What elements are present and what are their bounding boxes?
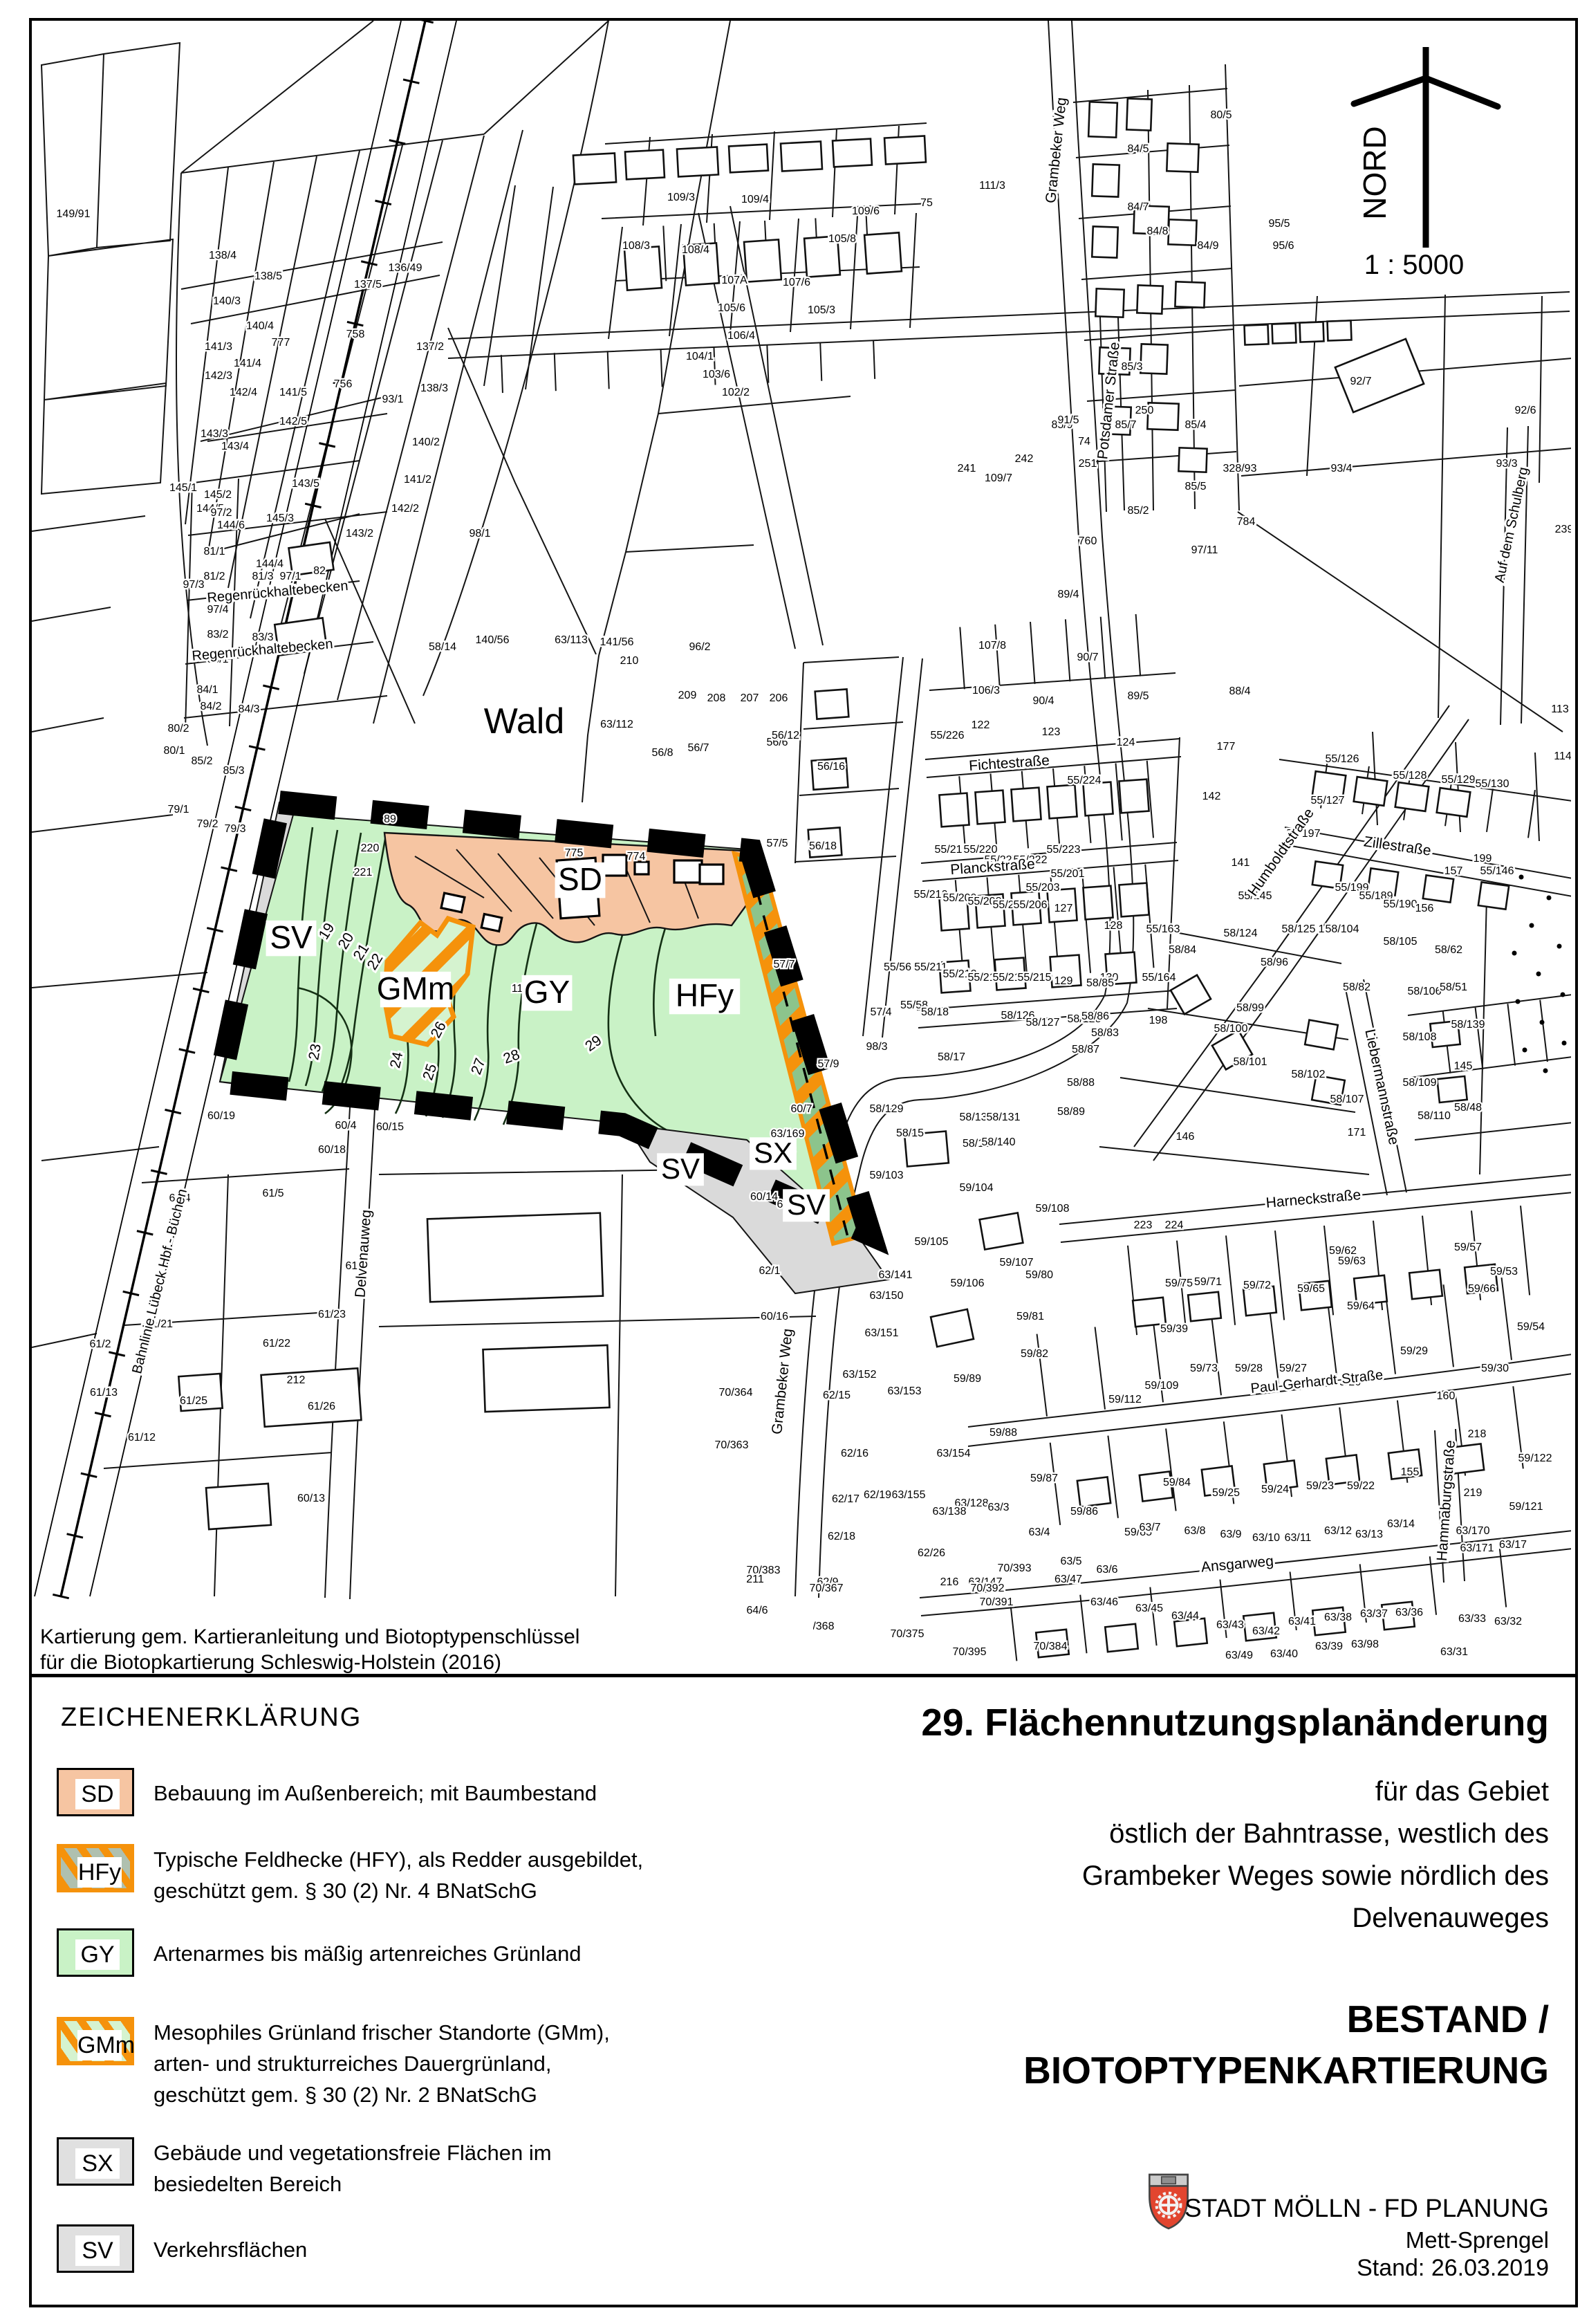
- parcel-label: 84/2: [200, 701, 221, 712]
- parcel-label: 55/128: [1393, 770, 1427, 782]
- svg-text:59/23: 59/23: [1306, 1480, 1334, 1492]
- parcel-label: 84/1: [196, 684, 218, 696]
- parcel-label: 58/15: [896, 1127, 924, 1139]
- svg-text:92/7: 92/7: [1350, 376, 1371, 387]
- parcel-label: 63/9: [1220, 1529, 1241, 1540]
- parcel-label: 95/5: [1268, 218, 1290, 230]
- parcel-label: 250: [1135, 405, 1154, 416]
- svg-text:224: 224: [1165, 1219, 1184, 1231]
- svg-text:Grambeker Weg: Grambeker Weg: [769, 1328, 796, 1435]
- parcel-label: 138/3: [420, 382, 448, 394]
- parcel-label: 122: [972, 719, 990, 731]
- svg-text:84/8: 84/8: [1146, 225, 1168, 237]
- svg-text:59/80: 59/80: [1025, 1269, 1053, 1281]
- parcel-label: 61/13: [90, 1387, 118, 1399]
- parcel-label: 62/16: [841, 1448, 868, 1459]
- svg-text:58/87: 58/87: [1072, 1044, 1099, 1055]
- parcel-label: 108/4: [682, 244, 709, 256]
- parcel-label: 105/6: [718, 302, 745, 314]
- biotope-code-label: SV: [266, 919, 317, 956]
- parcel-label: 123: [1042, 726, 1061, 738]
- legend-code: SV: [75, 2235, 120, 2266]
- map-note: Kartierung gem. Kartieranleitung und Bio…: [35, 1620, 813, 1682]
- svg-text:97/3: 97/3: [183, 579, 204, 591]
- parcel-label: 140/3: [213, 295, 241, 307]
- svg-text:58/127: 58/127: [1026, 1017, 1060, 1029]
- parcel-label: 58/48: [1454, 1102, 1482, 1114]
- parcel-label: 63/49: [1225, 1650, 1253, 1661]
- svg-text:63/141: 63/141: [879, 1269, 913, 1281]
- svg-text:HFy: HFy: [676, 977, 734, 1013]
- parcel-label: 58/110: [1418, 1110, 1451, 1122]
- svg-text:140/56: 140/56: [476, 634, 510, 646]
- svg-text:SX: SX: [754, 1136, 792, 1169]
- parcel-label: 63/138: [933, 1506, 967, 1518]
- svg-text:241: 241: [958, 463, 976, 474]
- parcel-label: 58/109: [1403, 1077, 1437, 1089]
- parcel-label: 63/43: [1216, 1619, 1244, 1631]
- svg-text:58/14: 58/14: [429, 641, 456, 653]
- plan-subtitle-line: Grambeker Weges sowie nördlich des: [788, 1855, 1549, 1897]
- svg-text:199: 199: [1474, 853, 1492, 865]
- legend-description: Gebäude und vegetationsfreie Flächen imb…: [154, 2137, 552, 2199]
- parcel-label: 85/3: [223, 765, 244, 777]
- svg-text:59/71: 59/71: [1194, 1276, 1222, 1288]
- parcel-label: 55/224: [1068, 775, 1102, 786]
- parcel-label: 98/3: [866, 1041, 887, 1053]
- parcel-label: 55/146: [1480, 865, 1514, 877]
- street-label: Fichtestraße: [969, 753, 1050, 774]
- svg-text:216: 216: [940, 1576, 959, 1588]
- svg-text:63/154: 63/154: [937, 1448, 971, 1459]
- svg-text:242: 242: [1015, 453, 1034, 465]
- parcel-label: 89/5: [1127, 690, 1149, 702]
- svg-text:211: 211: [746, 1574, 764, 1585]
- svg-text:60/7: 60/7: [790, 1103, 812, 1115]
- parcel-label: 760: [1079, 535, 1097, 547]
- parcel-label: 91/5: [1057, 414, 1079, 426]
- parcel-label: 141/56: [600, 636, 634, 648]
- svg-text:59/65: 59/65: [1297, 1283, 1325, 1295]
- moelln-coat-of-arms-icon: [1148, 2173, 1189, 2230]
- svg-text:70/367: 70/367: [810, 1583, 844, 1594]
- svg-text:209: 209: [678, 690, 697, 701]
- svg-text:59/108: 59/108: [1036, 1203, 1070, 1215]
- parcel-label: 60/7: [790, 1103, 812, 1115]
- svg-text:58/101: 58/101: [1234, 1056, 1267, 1068]
- svg-text:63/98: 63/98: [1351, 1639, 1379, 1650]
- svg-text:97/2: 97/2: [210, 507, 232, 519]
- svg-text:90/7: 90/7: [1077, 652, 1098, 663]
- svg-text:55/127: 55/127: [1311, 795, 1345, 806]
- parcel-label: 63/5: [1060, 1556, 1081, 1567]
- svg-text:63/171: 63/171: [1460, 1542, 1494, 1554]
- svg-text:221: 221: [354, 867, 373, 878]
- biotope-code-label: SV: [657, 1152, 704, 1186]
- svg-text:95/5: 95/5: [1268, 218, 1290, 230]
- legend-description: Bebauung im Außenbereich; mit Baumbestan…: [154, 1778, 597, 1809]
- parcel-label: 138/4: [209, 250, 236, 261]
- parcel-label: 63/33: [1458, 1613, 1486, 1625]
- parcel-label: 63/152: [843, 1369, 877, 1381]
- svg-text:63/9: 63/9: [1220, 1529, 1241, 1540]
- parcel-label: 63/39: [1315, 1641, 1343, 1652]
- svg-text:63/113: 63/113: [555, 634, 588, 646]
- street-label: Delvenauweg: [353, 1209, 375, 1298]
- street-label: Harneckstraße: [1265, 1187, 1362, 1211]
- parcel-label: 63/150: [870, 1290, 904, 1302]
- svg-text:58/86: 58/86: [1081, 1011, 1109, 1022]
- svg-text:59/112: 59/112: [1108, 1394, 1142, 1405]
- svg-text:59/53: 59/53: [1490, 1266, 1518, 1278]
- parcel-label: 59/23: [1306, 1480, 1334, 1492]
- parcel-label: 58/17: [938, 1051, 965, 1063]
- svg-text:81/1: 81/1: [203, 546, 225, 557]
- svg-text:144/6: 144/6: [217, 519, 245, 531]
- svg-text:61/5: 61/5: [262, 1188, 284, 1199]
- parcel-label: 63/13: [1355, 1529, 1383, 1540]
- svg-text:141/56: 141/56: [600, 636, 634, 648]
- svg-text:Regenrückhaltebecken: Regenrückhaltebecken: [207, 578, 349, 606]
- parcel-label: 59/65: [1297, 1283, 1325, 1295]
- parcel-label: 61/2: [89, 1338, 111, 1350]
- parcel-label: 63/3: [987, 1502, 1009, 1513]
- svg-text:62/17: 62/17: [832, 1493, 859, 1505]
- parcel-label: 62/26: [918, 1547, 945, 1559]
- svg-text:208: 208: [707, 692, 726, 704]
- parcel-label: 63/40: [1270, 1648, 1298, 1660]
- parcel-label: 160: [1437, 1390, 1456, 1402]
- svg-text:142/4: 142/4: [230, 387, 257, 398]
- parcel-label: 89/4: [1057, 589, 1079, 600]
- street-label: Grambeker Weg: [1043, 97, 1070, 204]
- svg-text:61/26: 61/26: [308, 1401, 335, 1412]
- svg-text:141/2: 141/2: [404, 474, 431, 486]
- svg-text:58/85: 58/85: [1086, 977, 1114, 989]
- svg-text:92/6: 92/6: [1514, 405, 1536, 416]
- svg-text:146: 146: [1176, 1131, 1195, 1143]
- svg-text:63/138: 63/138: [933, 1506, 967, 1518]
- svg-text:143/5: 143/5: [292, 478, 319, 490]
- legend-code: SD: [75, 1779, 120, 1809]
- parcel-label: 64/6: [746, 1605, 768, 1616]
- parcel-label: 784: [1237, 516, 1256, 528]
- parcel-label: 79/1: [167, 804, 189, 815]
- svg-text:59/81: 59/81: [1016, 1311, 1044, 1322]
- svg-text:59/103: 59/103: [870, 1170, 904, 1181]
- parcel-label: 61/22: [263, 1338, 290, 1349]
- parcel-label: 58/131: [987, 1112, 1021, 1123]
- parcel-label: 61/12: [128, 1432, 156, 1444]
- svg-text:218: 218: [1468, 1428, 1487, 1440]
- parcel-label: 114: [1554, 750, 1571, 762]
- parcel-label: 85/2: [1127, 505, 1149, 517]
- plan-subtitle: für das Gebietöstlich der Bahntrasse, we…: [788, 1771, 1549, 1939]
- parcel-label: 96/2: [689, 641, 710, 653]
- svg-text:55/190: 55/190: [1384, 898, 1418, 910]
- svg-text:62/16: 62/16: [841, 1448, 868, 1459]
- parcel-label: 59/105: [915, 1236, 949, 1248]
- biotope-code-label: SX: [750, 1136, 797, 1170]
- svg-text:85/2: 85/2: [1127, 505, 1149, 517]
- plan-sheet: NORD 1 : 5000 138/4138/5137/5136/49140/3…: [0, 0, 1589, 2324]
- parcel-label: 58/101: [1234, 1056, 1267, 1068]
- map-note-line: für die Biotopkartierung Schleswig-Holst…: [40, 1650, 808, 1675]
- svg-text:55/224: 55/224: [1068, 775, 1102, 786]
- parcel-label: 84/5: [1127, 143, 1149, 155]
- parcel-label: 63/47: [1054, 1574, 1082, 1585]
- parcel-label: 61/25: [180, 1395, 207, 1407]
- parcel-label: 70/384: [1034, 1641, 1068, 1652]
- svg-text:58/125: 58/125: [1282, 923, 1316, 935]
- parcel-label: 128: [1104, 920, 1123, 932]
- svg-text:98/3: 98/3: [866, 1041, 887, 1053]
- parcel-label: 60/15: [376, 1121, 404, 1133]
- svg-text:70/391: 70/391: [980, 1596, 1014, 1608]
- parcel-label: 63/153: [888, 1385, 922, 1397]
- parcel-label: 111/3: [979, 180, 1005, 192]
- svg-text:137/5: 137/5: [354, 279, 382, 290]
- svg-text:58/15: 58/15: [896, 1127, 924, 1139]
- svg-text:59/88: 59/88: [989, 1427, 1017, 1439]
- svg-text:Delvenauweg: Delvenauweg: [353, 1209, 375, 1298]
- parcel-label: 145/3: [266, 513, 294, 524]
- parcel-label: 55/129: [1442, 774, 1476, 786]
- svg-text:59/63: 59/63: [1338, 1255, 1366, 1267]
- svg-text:63/36: 63/36: [1395, 1607, 1423, 1618]
- svg-text:55/164: 55/164: [1142, 972, 1176, 984]
- parcel-label: 61/23: [318, 1309, 346, 1320]
- svg-text:75: 75: [920, 197, 933, 209]
- parcel-label: 239: [1555, 524, 1571, 535]
- plan-subject: BESTAND /BIOTOPTYPENKARTIERUNG: [719, 1993, 1549, 2096]
- parcel-label: 58/108: [1403, 1031, 1437, 1043]
- parcel-label: 97/3: [183, 579, 204, 591]
- parcel-label: 63/151: [865, 1327, 899, 1339]
- svg-text:79/3: 79/3: [224, 823, 245, 835]
- parcel-label: 58/106: [1408, 986, 1442, 997]
- svg-text:59/29: 59/29: [1400, 1345, 1428, 1357]
- svg-text:138/3: 138/3: [420, 382, 448, 394]
- svg-text:85/4: 85/4: [1184, 419, 1206, 431]
- parcel-label: 55/215: [1018, 972, 1052, 984]
- parcel-label: 211: [746, 1574, 764, 1585]
- parcel-label: 59/89: [954, 1373, 981, 1385]
- parcel-label: 146: [1176, 1131, 1195, 1143]
- parcel-label: 62/1: [759, 1265, 780, 1277]
- parcel-label: 63/113: [555, 634, 588, 646]
- parcel-label: 74: [1078, 436, 1090, 448]
- legend-code: SX: [75, 2148, 120, 2179]
- parcel-label: 775: [565, 847, 584, 859]
- svg-text:57/9: 57/9: [817, 1058, 839, 1070]
- parcel-label: 142/4: [230, 387, 257, 398]
- svg-text:80/2: 80/2: [167, 723, 189, 735]
- svg-text:59/72: 59/72: [1243, 1280, 1271, 1291]
- svg-text:70/363: 70/363: [715, 1439, 749, 1451]
- parcel-label: 109/7: [985, 472, 1012, 484]
- svg-text:109/4: 109/4: [741, 194, 769, 205]
- svg-text:56/18: 56/18: [809, 840, 837, 852]
- svg-text:80/1: 80/1: [163, 745, 185, 757]
- svg-text:55/201: 55/201: [1051, 868, 1085, 880]
- parcel-label: 328/93: [1223, 463, 1257, 474]
- svg-text:160: 160: [1437, 1390, 1456, 1402]
- parcel-label: 60/13: [297, 1493, 325, 1504]
- svg-text:63/12: 63/12: [1324, 1525, 1352, 1537]
- svg-text:Harneckstraße: Harneckstraße: [1265, 1187, 1362, 1211]
- legend-swatch-gmm-icon: GMm: [57, 2017, 134, 2065]
- parcel-label: 70/393: [998, 1562, 1032, 1574]
- svg-text:58/99: 58/99: [1236, 1002, 1264, 1014]
- parcel-label: 58/125: [1282, 923, 1316, 935]
- parcel-label: 58/88: [1067, 1077, 1095, 1089]
- svg-text:60/18: 60/18: [318, 1144, 346, 1156]
- street-label: Bahnlinie Lübeck Hbf - Büchen: [129, 1188, 190, 1376]
- parcel-label: 55/201: [1051, 868, 1085, 880]
- svg-text:63/17: 63/17: [1499, 1539, 1527, 1551]
- parcel-label: 59/25: [1212, 1487, 1240, 1499]
- svg-text:63/5: 63/5: [1060, 1556, 1081, 1567]
- svg-text:157: 157: [1444, 865, 1463, 877]
- svg-text:58/96: 58/96: [1261, 957, 1288, 968]
- parcel-label: 104/1: [686, 351, 714, 362]
- svg-text:58/102: 58/102: [1292, 1069, 1326, 1080]
- parcel-label: 88/4: [1229, 685, 1250, 697]
- svg-text:141/5: 141/5: [279, 387, 307, 398]
- parcel-label: 62/17: [832, 1493, 859, 1505]
- parcel-label: 59/104: [960, 1182, 994, 1194]
- parcel-label: 84/7: [1127, 201, 1149, 213]
- parcel-label: 59/82: [1021, 1348, 1048, 1360]
- parcel-label: 138/5: [254, 270, 282, 282]
- parcel-label: 97/1: [279, 571, 301, 582]
- svg-text:58/88: 58/88: [1067, 1077, 1095, 1089]
- parcel-label: 220: [361, 842, 380, 854]
- parcel-label: 59/29: [1400, 1345, 1428, 1357]
- svg-text:59/89: 59/89: [954, 1373, 981, 1385]
- parcel-label: 143/2: [346, 528, 373, 539]
- svg-text:59/27: 59/27: [1279, 1363, 1307, 1374]
- svg-text:63/153: 63/153: [888, 1385, 922, 1397]
- svg-text:84/9: 84/9: [1197, 240, 1218, 252]
- svg-text:70/393: 70/393: [998, 1562, 1032, 1574]
- svg-text:58/109: 58/109: [1403, 1077, 1437, 1089]
- parcel-label: 59/121: [1509, 1501, 1543, 1513]
- north-arrow: NORD 1 : 5000: [1354, 47, 1498, 280]
- parcel-label: 60/14: [750, 1191, 778, 1203]
- svg-text:328/93: 328/93: [1223, 463, 1257, 474]
- parcel-label: 63/8: [1184, 1525, 1205, 1537]
- svg-text:58/139: 58/139: [1451, 1019, 1485, 1031]
- svg-text:250: 250: [1135, 405, 1154, 416]
- parcel-label: 63/7: [1139, 1522, 1160, 1533]
- svg-text:774: 774: [627, 851, 646, 863]
- biotope-code-label: SV: [783, 1188, 830, 1221]
- svg-text:57/5: 57/5: [766, 838, 788, 849]
- parcel-label: 58/99: [1236, 1002, 1264, 1014]
- parcel-label: 108/3: [622, 240, 650, 252]
- svg-text:63/32: 63/32: [1494, 1616, 1522, 1627]
- svg-text:143/3: 143/3: [201, 428, 228, 440]
- parcel-label: 58/86: [1081, 1011, 1109, 1022]
- svg-text:79/1: 79/1: [167, 804, 189, 815]
- svg-text:55/203: 55/203: [1026, 882, 1060, 894]
- parcel-label: 63/154: [937, 1448, 971, 1459]
- svg-text:23: 23: [306, 1042, 324, 1061]
- parcel-label: 57/4: [870, 1006, 891, 1018]
- parcel-label: 55/226: [931, 730, 965, 741]
- svg-text:122: 122: [972, 719, 990, 731]
- parcel-label: 70/364: [719, 1387, 753, 1399]
- legend-swatch-gy-icon: GY: [57, 1928, 134, 1977]
- parcel-label: 140/2: [412, 436, 440, 448]
- svg-text:97/1: 97/1: [279, 571, 301, 582]
- svg-text:775: 775: [565, 847, 584, 859]
- parcel-label: 63/6: [1096, 1564, 1117, 1576]
- svg-text:70/392: 70/392: [971, 1583, 1005, 1594]
- svg-text:Ansgarweg: Ansgarweg: [1200, 1553, 1274, 1575]
- street-label: Humboldtstraße: [1245, 805, 1317, 899]
- svg-text:58/18: 58/18: [921, 1006, 949, 1018]
- svg-text:85/2: 85/2: [191, 755, 212, 767]
- parcel-label: 57/5: [766, 838, 788, 849]
- parcel-label: 81/2: [203, 571, 225, 582]
- parcel-label: 59/84: [1163, 1477, 1191, 1488]
- svg-text:140/3: 140/3: [213, 295, 241, 307]
- parcel-label: 55/190: [1384, 898, 1418, 910]
- svg-text:58/17: 58/17: [938, 1051, 965, 1063]
- svg-text:62/19: 62/19: [864, 1489, 891, 1501]
- legend-swatch-hfy-icon: HFy: [57, 1844, 134, 1892]
- svg-text:141/3: 141/3: [205, 341, 232, 353]
- svg-text:63/8: 63/8: [1184, 1525, 1205, 1537]
- parcel-label: 124: [1117, 737, 1135, 748]
- svg-text:63/33: 63/33: [1458, 1613, 1486, 1625]
- parcel-label: 107A: [721, 275, 747, 286]
- parcel-label: 55/126: [1326, 753, 1359, 765]
- svg-text:140/4: 140/4: [246, 320, 274, 332]
- wald-label: Wald: [484, 701, 565, 741]
- svg-text:156: 156: [1415, 903, 1434, 914]
- svg-text:59/28: 59/28: [1235, 1363, 1263, 1374]
- svg-text:55/128: 55/128: [1393, 770, 1427, 782]
- svg-text:SV: SV: [661, 1152, 700, 1185]
- svg-text:59/24: 59/24: [1261, 1484, 1289, 1495]
- svg-text:107/8: 107/8: [978, 640, 1006, 652]
- svg-text:56/16: 56/16: [817, 761, 845, 773]
- parcel-label: 70/391: [980, 1596, 1014, 1608]
- svg-text:59/22: 59/22: [1347, 1480, 1375, 1492]
- parcel-label: 80/1: [163, 745, 185, 757]
- svg-text:59/30: 59/30: [1481, 1363, 1509, 1374]
- svg-text:171: 171: [1348, 1127, 1366, 1138]
- parcel-label: 149/91: [57, 208, 91, 220]
- svg-text:59/66: 59/66: [1468, 1283, 1496, 1295]
- svg-text:105/3: 105/3: [808, 304, 835, 316]
- parcel-label: 63/155: [892, 1489, 926, 1501]
- parcel-label: 84/8: [1146, 225, 1168, 237]
- parcel-label: 58/124: [1224, 928, 1258, 939]
- parcel-label: 70/367: [810, 1583, 844, 1594]
- parcel-label: 63/171: [1460, 1542, 1494, 1554]
- parcel-label: 59/73: [1190, 1363, 1218, 1374]
- svg-text:85/3: 85/3: [1121, 361, 1142, 373]
- svg-text:177: 177: [1217, 741, 1236, 753]
- svg-text:63/14: 63/14: [1387, 1518, 1415, 1530]
- parcel-label: 109/3: [667, 192, 695, 203]
- svg-text:105/6: 105/6: [718, 302, 745, 314]
